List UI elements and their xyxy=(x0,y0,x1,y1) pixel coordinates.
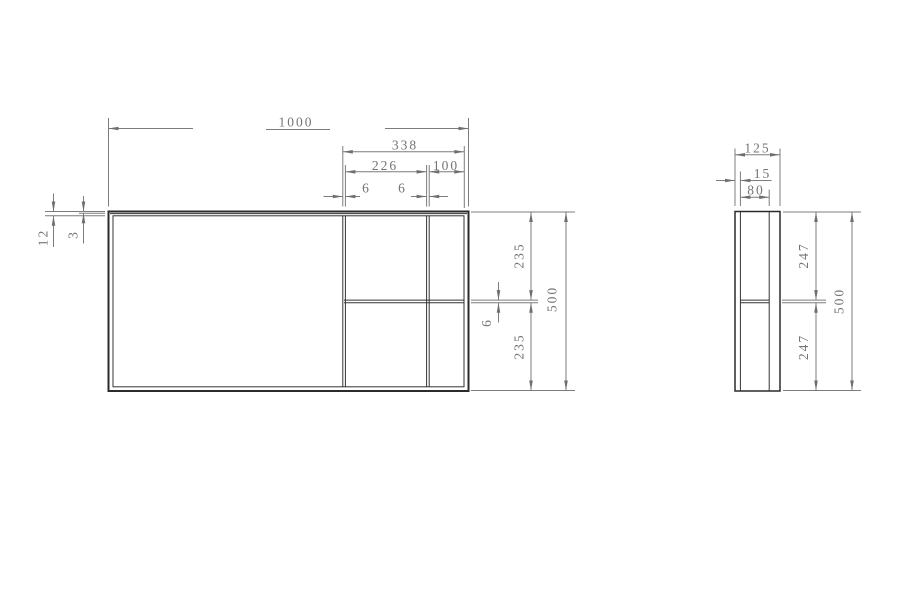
front-top-extension-lines xyxy=(109,118,469,208)
drawing-page: 1000 338 226 100 6 6 12 3 xyxy=(0,0,900,599)
dim-side-overall-depth: 125 xyxy=(735,140,780,155)
dim-front-middle-opening: 226 xyxy=(345,158,426,173)
dim-text-3: 3 xyxy=(66,230,81,239)
side-view-body xyxy=(735,212,780,392)
dim-side-overall-height: 500 xyxy=(832,212,853,391)
dim-side-front-lip: 15 xyxy=(716,166,772,181)
dim-text-235: 235 xyxy=(512,242,527,268)
front-left-extension-lines xyxy=(45,212,105,216)
dim-side-lower-section: 247 xyxy=(796,303,816,391)
dim-front-mullion-2-thickness: 6 xyxy=(398,181,448,197)
dim-front-rail-thickness: 6 xyxy=(479,282,499,327)
side-outer-profile xyxy=(735,212,780,392)
dim-front-profile-depth: 12 xyxy=(36,194,54,248)
dim-side-upper-section: 247 xyxy=(796,212,816,300)
dim-text-235: 235 xyxy=(512,333,527,359)
dim-text-6: 6 xyxy=(362,181,371,196)
dim-text-1000: 1000 xyxy=(279,115,314,130)
side-right-extension-lines xyxy=(782,212,861,391)
dim-front-right-assembly: 338 xyxy=(343,138,465,153)
dim-text-6: 6 xyxy=(479,318,494,327)
front-outer-frame xyxy=(109,212,469,392)
front-view-body xyxy=(109,212,469,392)
dim-text-80: 80 xyxy=(747,183,765,198)
dim-text-125: 125 xyxy=(744,140,770,155)
dim-text-247: 247 xyxy=(796,242,811,268)
dim-text-247: 247 xyxy=(796,334,811,360)
dim-front-overall-width: 1000 xyxy=(109,115,469,130)
technical-drawing-canvas: 1000 338 226 100 6 6 12 3 xyxy=(0,0,900,599)
dim-text-12: 12 xyxy=(36,229,51,247)
dim-text-15: 15 xyxy=(754,166,772,181)
dim-text-500: 500 xyxy=(545,286,560,312)
dim-front-upper-opening: 235 xyxy=(512,212,532,300)
dim-text-100: 100 xyxy=(433,158,459,173)
dim-side-channel-opening: 80 xyxy=(740,183,769,198)
dim-front-right-opening: 100 xyxy=(429,158,464,173)
dim-front-lower-opening: 235 xyxy=(512,303,532,391)
dim-front-face-offset: 3 xyxy=(66,196,84,244)
dim-front-mullion-1-thickness: 6 xyxy=(324,181,371,197)
dim-text-6: 6 xyxy=(398,181,407,196)
dim-text-338: 338 xyxy=(392,138,418,153)
dim-front-overall-height: 500 xyxy=(545,212,567,391)
front-inner-frame xyxy=(113,216,464,387)
dim-text-500: 500 xyxy=(832,288,847,314)
dim-text-226: 226 xyxy=(372,158,398,173)
